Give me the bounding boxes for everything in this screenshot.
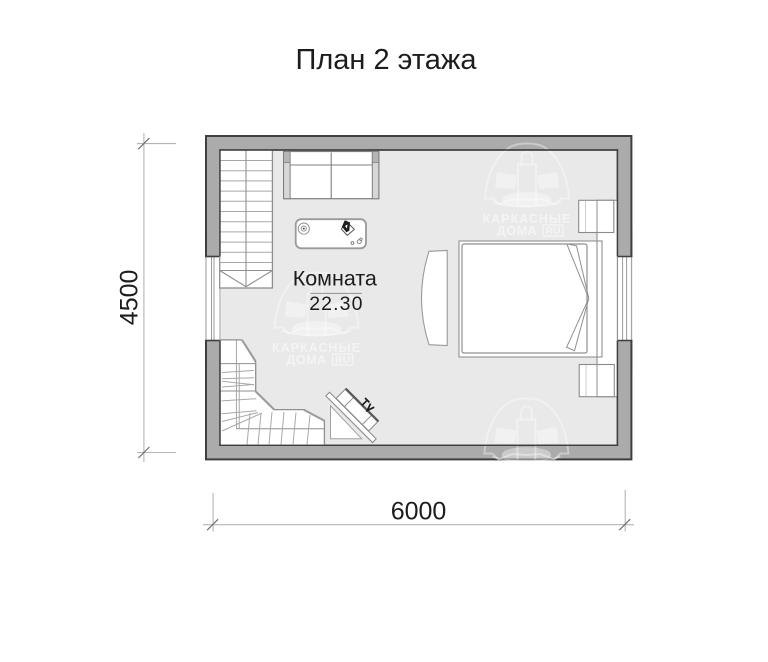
svg-text:6000: 6000 bbox=[391, 498, 447, 526]
svg-text:План 2 этажа: План 2 этажа bbox=[296, 44, 478, 76]
svg-text:Комната: Комната bbox=[293, 267, 377, 291]
svg-text:22.30: 22.30 bbox=[309, 293, 363, 315]
svg-text:4500: 4500 bbox=[116, 270, 144, 326]
